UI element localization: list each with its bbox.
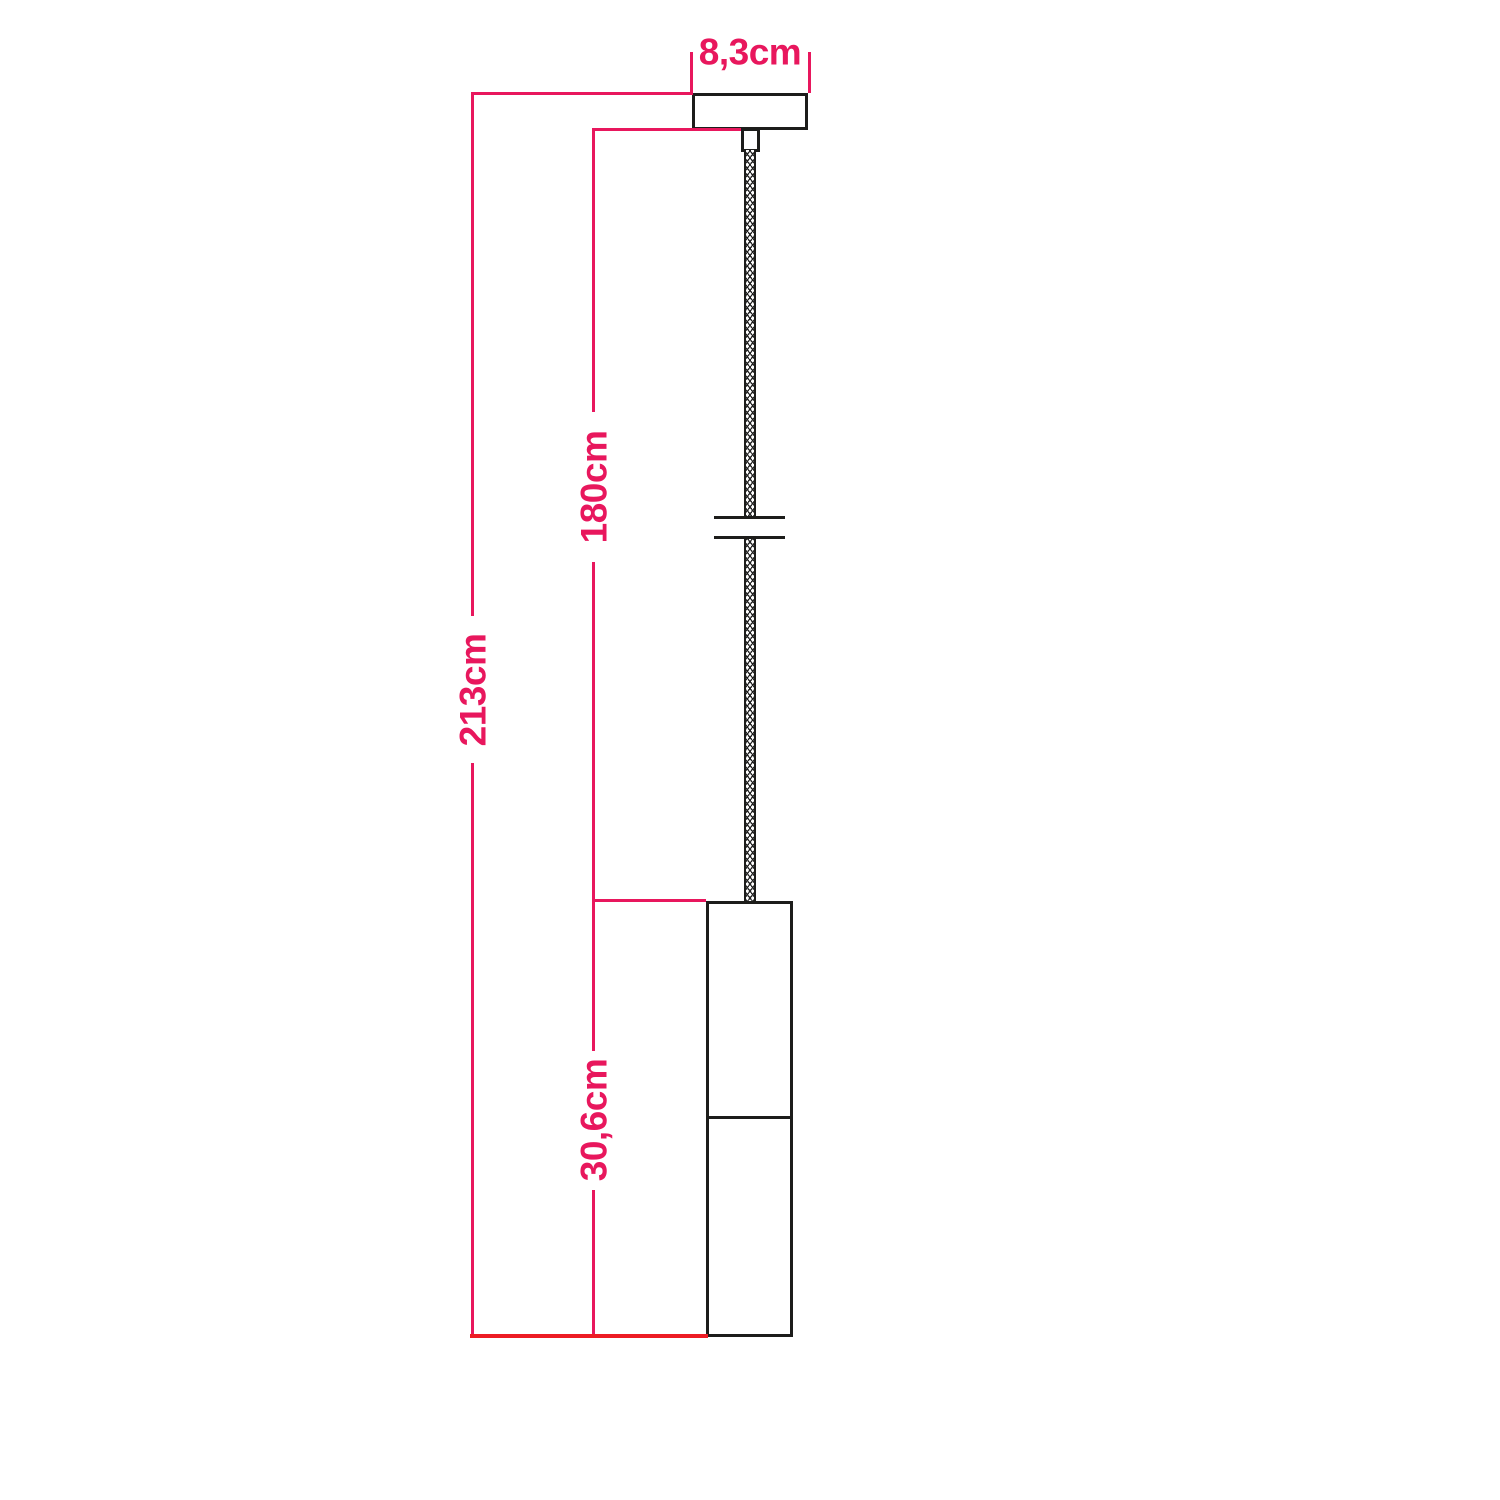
dim-label-canopy-width: 8,3cm xyxy=(699,34,801,71)
dim-extension-cable-top xyxy=(592,128,741,131)
cable-ring-disc xyxy=(714,516,785,539)
lamp-shade-body xyxy=(706,901,793,1337)
dimension-diagram: 8,3cm 213cm 180cm 30,6cm xyxy=(0,0,1500,1500)
dim-line-cable-lower xyxy=(592,562,595,901)
dim-line-shade-upper xyxy=(592,899,595,1051)
dim-line-total-upper xyxy=(471,92,474,616)
dim-extension-shade-top xyxy=(592,899,706,902)
lamp-shade-divider-line xyxy=(706,1116,793,1119)
cable-strain-relief xyxy=(741,128,760,152)
dim-line-shade-lower xyxy=(592,1190,595,1337)
dim-baseline-bottom xyxy=(470,1334,708,1338)
dim-extension-total-top xyxy=(471,92,693,95)
dim-label-shade-height: 30,6cm xyxy=(576,1059,613,1182)
dim-tick-canopy-left xyxy=(690,52,693,93)
dim-label-cable-drop: 180cm xyxy=(576,431,613,544)
dim-label-total-drop: 213cm xyxy=(455,634,492,747)
ceiling-canopy xyxy=(692,93,808,130)
dim-line-cable-upper xyxy=(592,128,595,412)
dim-line-total-lower xyxy=(471,763,474,1337)
dim-tick-canopy-right xyxy=(808,52,811,93)
